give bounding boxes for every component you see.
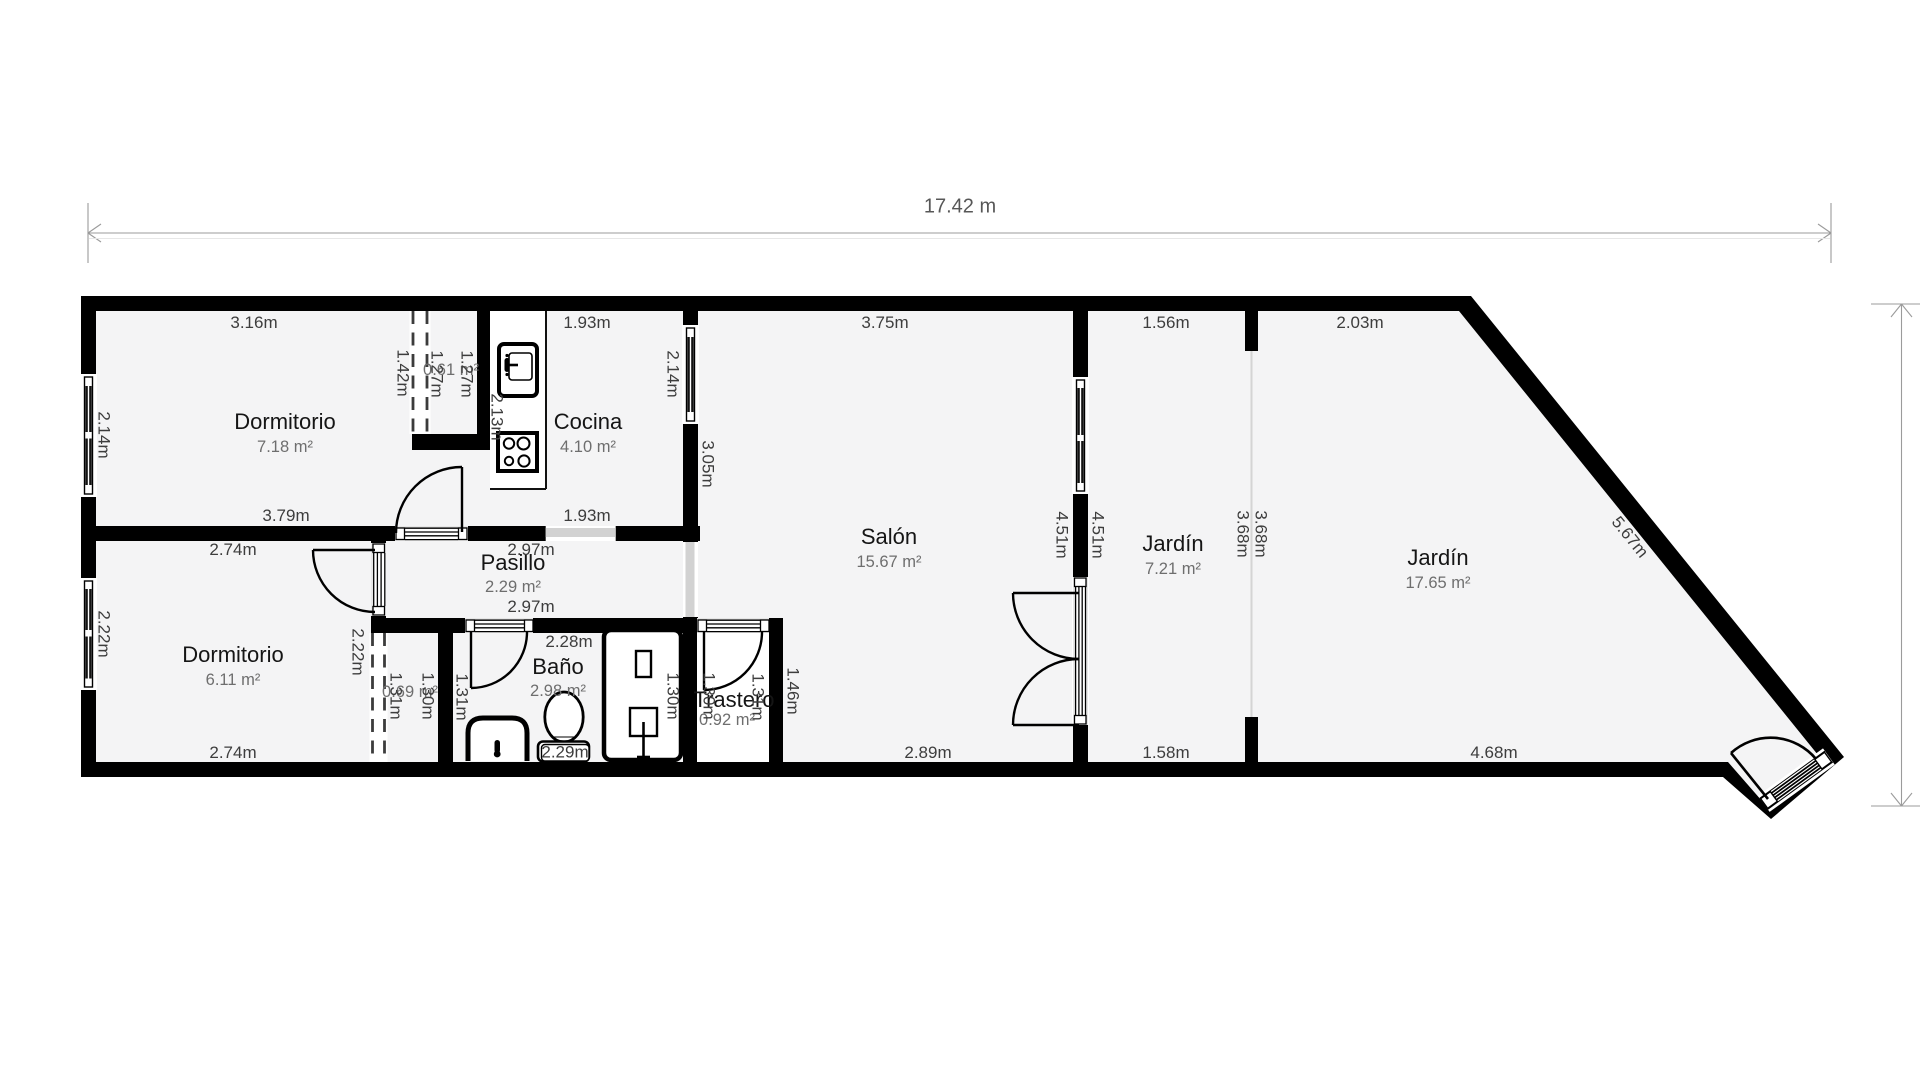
svg-text:2.03m: 2.03m [1336,313,1383,332]
svg-text:17.42 m: 17.42 m [924,196,996,218]
svg-text:1.30m: 1.30m [700,672,719,719]
svg-text:Baño: Baño [532,654,583,679]
svg-text:2.22m: 2.22m [349,628,368,675]
svg-text:3.68m: 3.68m [1252,510,1271,557]
svg-text:1.93m: 1.93m [563,313,610,332]
svg-text:2.14m: 2.14m [95,411,114,458]
svg-text:1.27m: 1.27m [428,350,447,397]
svg-text:3.05m: 3.05m [699,440,718,487]
svg-text:15.67 m²: 15.67 m² [856,553,922,571]
svg-text:1.30m: 1.30m [419,672,438,719]
svg-text:17.65 m²: 17.65 m² [1405,574,1471,592]
svg-text:2.28m: 2.28m [545,632,592,651]
svg-text:6.11 m²: 6.11 m² [206,671,261,689]
svg-text:2.74m: 2.74m [209,540,256,559]
svg-text:2.29 m²: 2.29 m² [485,578,541,596]
svg-text:Salón: Salón [861,524,917,549]
svg-text:1.56m: 1.56m [1142,313,1189,332]
svg-text:1.31m: 1.31m [749,673,768,720]
svg-text:Cocina: Cocina [554,409,623,434]
svg-text:1.30m: 1.30m [664,672,683,719]
svg-text:4.51m: 4.51m [1053,511,1072,558]
svg-text:7.21 m²: 7.21 m² [1145,560,1201,578]
svg-text:2.13m: 2.13m [488,393,507,440]
svg-text:Dormitorio: Dormitorio [182,642,283,667]
svg-text:2.22m: 2.22m [95,610,114,657]
svg-text:Jardín: Jardín [1142,531,1203,556]
svg-text:1.46m: 1.46m [784,667,803,714]
svg-text:7.18 m²: 7.18 m² [257,438,313,456]
svg-text:2.89m: 2.89m [904,743,951,762]
svg-text:1.27m: 1.27m [458,350,477,397]
svg-text:3.16m: 3.16m [230,313,277,332]
svg-text:4.68m: 4.68m [1470,743,1517,762]
svg-text:1.42m: 1.42m [394,349,413,396]
svg-text:2.97m: 2.97m [507,597,554,616]
svg-text:2.98 m²: 2.98 m² [530,682,586,700]
svg-text:1.31m: 1.31m [387,672,406,719]
svg-text:Jardín: Jardín [1407,545,1468,570]
svg-text:2.14m: 2.14m [664,350,683,397]
svg-text:4.51m: 4.51m [1089,511,1108,558]
svg-text:1.93m: 1.93m [563,506,610,525]
svg-text:2.74m: 2.74m [209,743,256,762]
svg-text:3.79m: 3.79m [262,506,309,525]
svg-text:2.29m: 2.29m [541,743,588,762]
svg-text:2.97m: 2.97m [507,540,554,559]
svg-text:4.10 m²: 4.10 m² [560,438,616,456]
svg-text:1.31m: 1.31m [453,673,472,720]
svg-text:1.58m: 1.58m [1142,743,1189,762]
svg-text:3.75m: 3.75m [861,313,908,332]
svg-text:Dormitorio: Dormitorio [234,409,335,434]
svg-text:3.68m: 3.68m [1234,510,1253,557]
